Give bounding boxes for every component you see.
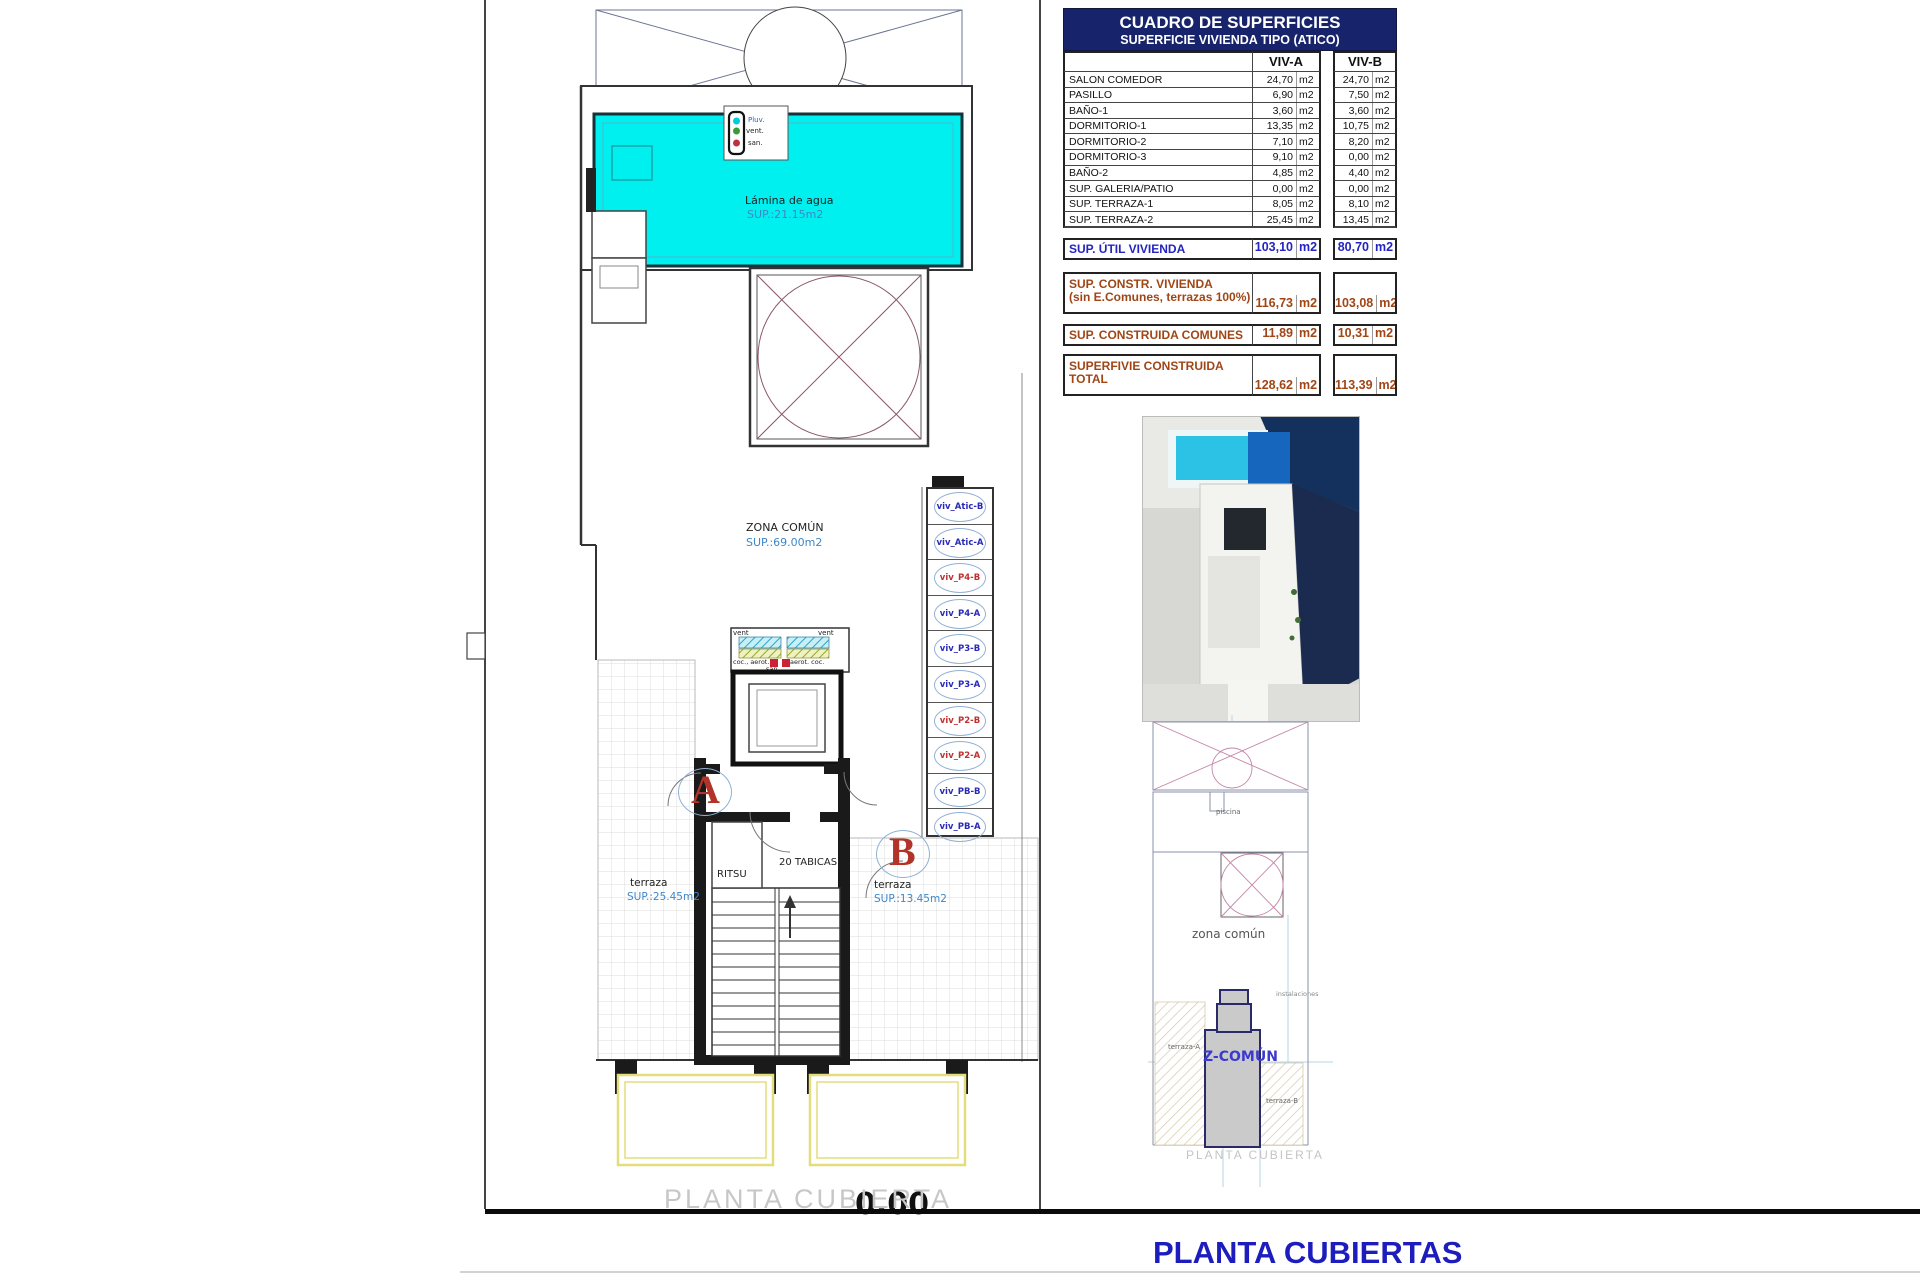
- mini-plan-caption: PLANTA CUBIERTA: [1186, 1148, 1324, 1162]
- table-row: PASILLO 6,90m2 7,50m2: [1063, 88, 1397, 104]
- pool-area-label: SUP.:21.15m2: [747, 208, 823, 221]
- mini-instalaciones-label: instalaciones: [1276, 990, 1319, 998]
- table-row: SUP. GALERIA/PATIO 0,00m2 0,00m2: [1063, 181, 1397, 197]
- shaft-cell: viv_P3-A: [928, 666, 992, 702]
- legend-san-label: san.: [766, 665, 780, 673]
- terraza-a-area-label: SUP.:25.45m2: [627, 891, 700, 903]
- legend-coc-right-label: aerot. coc.: [790, 658, 824, 666]
- summary-util: SUP. ÚTIL VIVIENDA 103,10m2 80,70m2: [1063, 238, 1397, 260]
- door-letter-b: B: [889, 832, 916, 872]
- vent-shaft-column: viv_Atic-B viv_Atic-A viv_P4-B viv_P4-A …: [926, 487, 994, 837]
- mini-terraza-b-label: terraza-B: [1266, 1097, 1298, 1105]
- table-header: CUADRO DE SUPERFICIES SUPERFICIE VIVIEND…: [1063, 8, 1397, 51]
- mini-cross-marks: [1153, 722, 1308, 917]
- 3d-render-image: [1142, 416, 1360, 722]
- surfaces-table: CUADRO DE SUPERFICIES SUPERFICIE VIVIEND…: [1063, 8, 1397, 396]
- col-header-viv-b: VIV-B: [1333, 51, 1397, 72]
- table-row: DORMITORIO-1 13,35m2 10,75m2: [1063, 119, 1397, 135]
- legend-coc-left-label: coc., aerot.: [733, 658, 769, 666]
- shaft-cell: viv_P4-B: [928, 559, 992, 595]
- riser-vent-label: vent.: [746, 127, 764, 135]
- shaft-cell: viv_PB-B: [928, 773, 992, 809]
- table-row: DORMITORIO-3 9,10m2 0,00m2: [1063, 150, 1397, 166]
- summary-total: SUPERFIVIE CONSTRUIDATOTAL 128,62m2 113,…: [1063, 354, 1397, 396]
- table-row: BAÑO-1 3,60m2 3,60m2: [1063, 103, 1397, 119]
- riser-pluv-label: Pluv.: [748, 116, 764, 124]
- mini-core-shape: [1205, 990, 1260, 1147]
- mini-piscina-label: piscina: [1216, 808, 1241, 816]
- table-row: SALON COMEDOR 24,70m2 24,70m2: [1063, 72, 1397, 88]
- col-header-empty: [1063, 51, 1253, 72]
- shaft-cell: viv_Atic-B: [928, 489, 992, 524]
- table-row: SUP. TERRAZA-2 25,45m2 13,45m2: [1063, 212, 1397, 228]
- shaft-cell: viv_Atic-A: [928, 524, 992, 560]
- plan-caption: PLANTA CUBIERTA: [664, 1184, 952, 1215]
- mini-terraza-a-label: terraza-A: [1168, 1043, 1200, 1051]
- riser-san-label: san.: [748, 139, 763, 147]
- drawing-sheet: 0.00: [0, 0, 1920, 1280]
- summary-constr: SUP. CONSTR. VIVIENDA(sin E.Comunes, ter…: [1063, 272, 1397, 314]
- zona-comun-label: ZONA COMÚN: [746, 521, 824, 534]
- mini-terraza-a-hatch: [1155, 1002, 1205, 1145]
- skylight-square: [750, 268, 928, 446]
- elevator-shaft: [733, 672, 841, 764]
- mini-zona-comun-label: zona común: [1192, 927, 1265, 941]
- shaft-cell: viv_P3-B: [928, 630, 992, 666]
- table-column-headers: VIV-A VIV-B: [1063, 51, 1397, 72]
- shaft-cell: viv_PB-A: [928, 808, 992, 844]
- mini-z-comun-label: Z-COMÚN: [1203, 1049, 1278, 1065]
- shaft-cell: viv_P2-B: [928, 702, 992, 738]
- mini-roof-diagram: [1148, 715, 1333, 1190]
- legend-vent-left-label: vent: [733, 629, 749, 637]
- terraza-b-area-label: SUP.:13.45m2: [874, 893, 947, 905]
- sheet-title: PLANTA CUBIERTAS: [1153, 1235, 1462, 1271]
- ritsu-label: RITSU: [717, 869, 747, 880]
- col-header-viv-a: VIV-A: [1253, 51, 1321, 72]
- awning-bays: [618, 1075, 965, 1165]
- legend-vent-right-label: vent: [818, 629, 834, 637]
- table-subtitle: SUPERFICIE VIVIENDA TIPO (ATICO): [1064, 33, 1396, 47]
- door-letter-a: A: [691, 770, 720, 810]
- table-row: DORMITORIO-2 7,10m2 8,20m2: [1063, 134, 1397, 150]
- shaft-cell: viv_P4-A: [928, 595, 992, 631]
- shaft-cell: viv_P2-A: [928, 737, 992, 773]
- footer-rule: [460, 1271, 1920, 1273]
- summary-comunes: SUP. CONSTRUIDA COMUNES 11,89m2 10,31m2: [1063, 324, 1397, 346]
- table-row: BAÑO-2 4,85m2 4,40m2: [1063, 166, 1397, 182]
- zona-comun-area-label: SUP.:69.00m2: [746, 536, 822, 549]
- pool-label: Lámina de agua: [745, 194, 834, 207]
- table-title: CUADRO DE SUPERFICIES: [1064, 13, 1396, 33]
- terraza-a-label: terraza: [630, 877, 667, 889]
- tabicas-label: 20 TABICAS: [779, 857, 837, 868]
- terraza-b-label: terraza: [874, 879, 911, 891]
- table-row: SUP. TERRAZA-1 8,05m2 8,10m2: [1063, 197, 1397, 213]
